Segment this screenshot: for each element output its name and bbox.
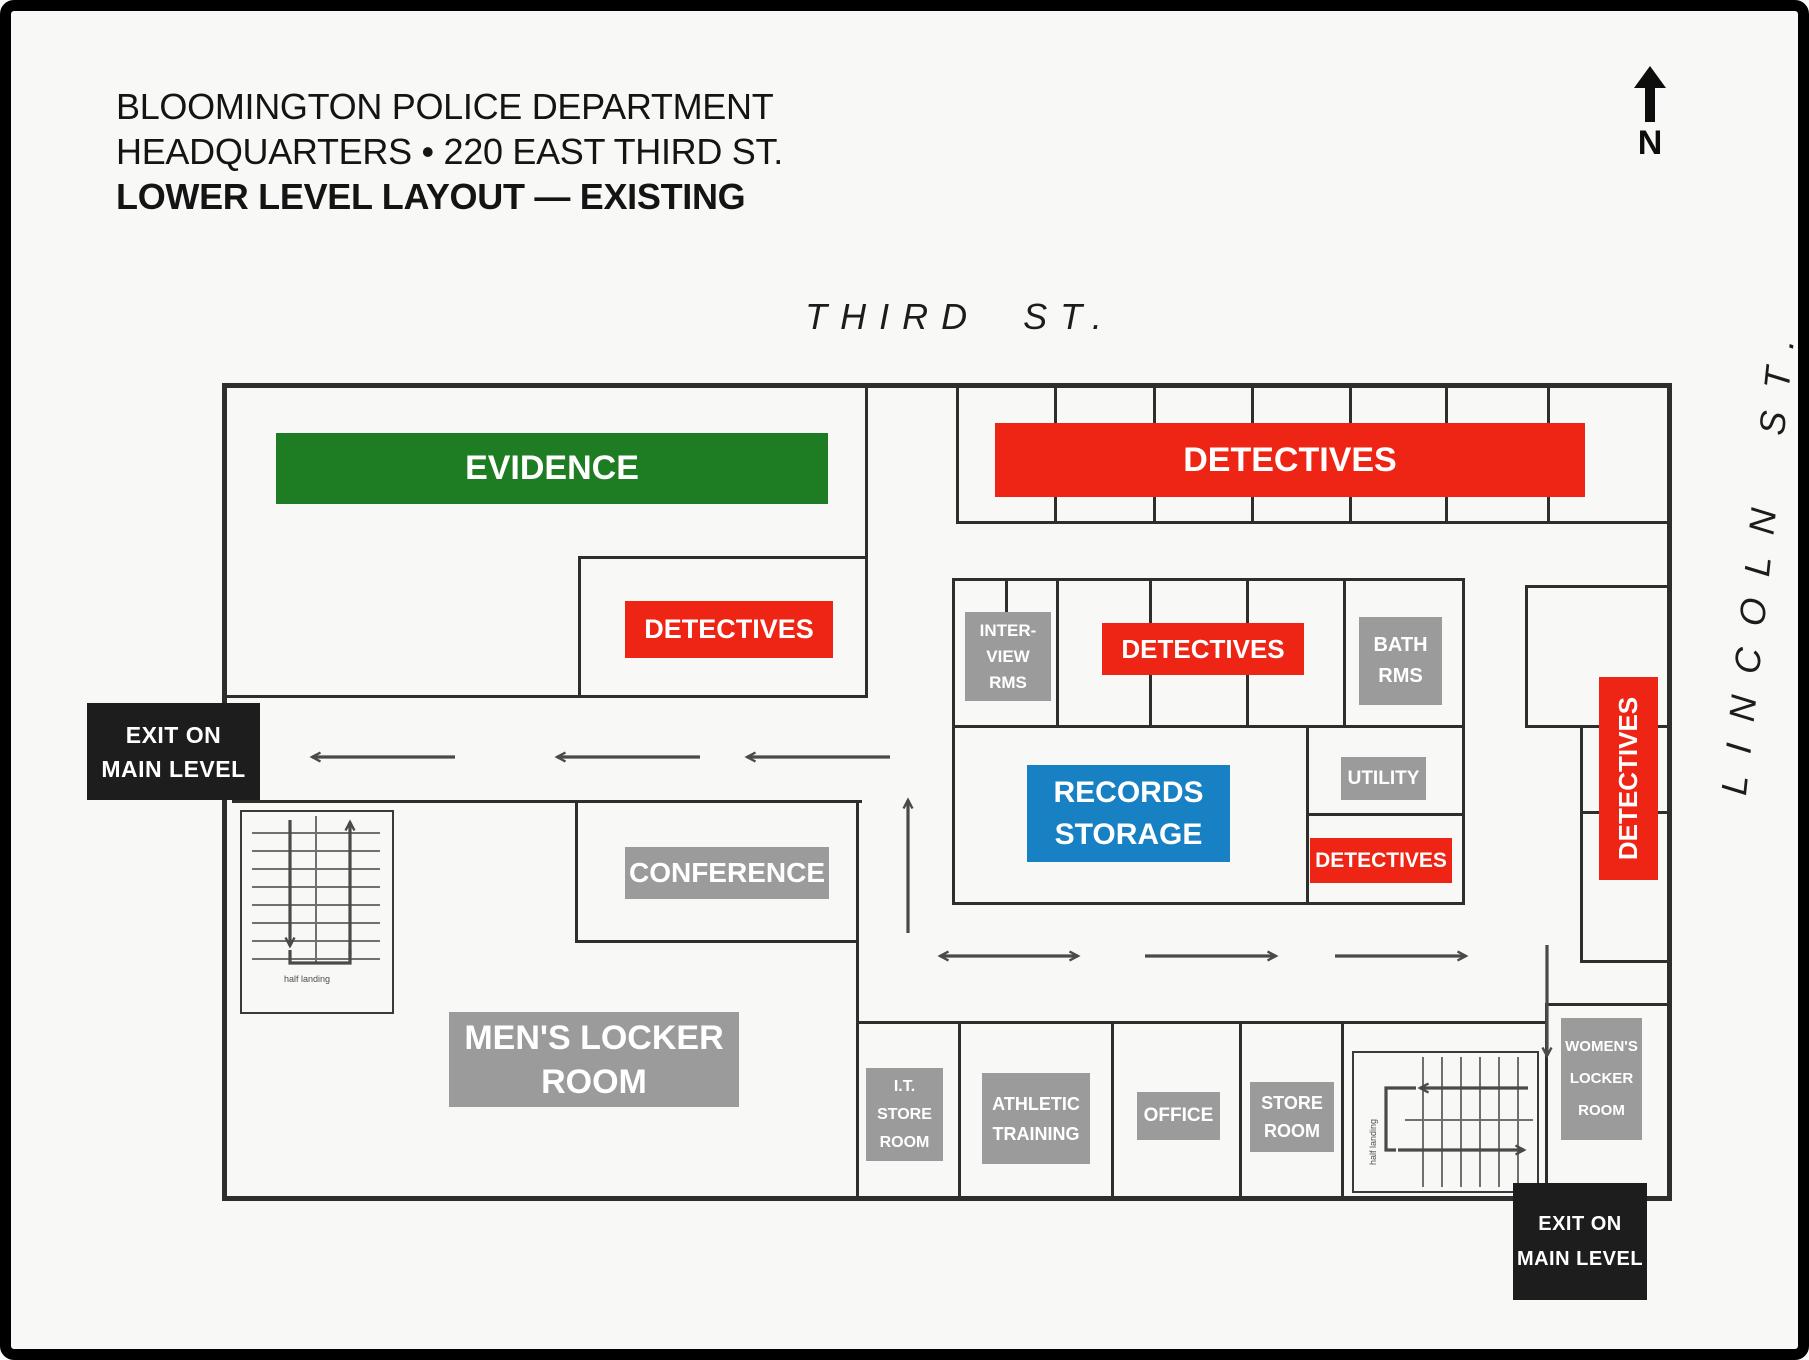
room-label-bath-rooms: BATH RMS xyxy=(1359,617,1442,705)
exit-southeast-badge: EXIT ON MAIN LEVEL xyxy=(1513,1183,1647,1300)
compass: N xyxy=(1618,66,1682,163)
room-label-it-store-room: I.T. STORE ROOM xyxy=(866,1068,943,1161)
room-label-store-room: STORE ROOM xyxy=(1250,1082,1334,1152)
title-line-3: LOWER LEVEL LAYOUT — EXISTING xyxy=(116,174,783,219)
room-label-womens-locker-room: WOMEN'S LOCKER ROOM xyxy=(1561,1018,1642,1140)
room-label-interview-rooms: INTER- VIEW RMS xyxy=(965,612,1051,701)
room-label-detectives-west: DETECTIVES xyxy=(625,601,833,658)
room-label-athletic-training: ATHLETIC TRAINING xyxy=(982,1073,1090,1164)
room-label-utility: UTILITY xyxy=(1341,757,1426,800)
compass-north-label: N xyxy=(1618,124,1682,163)
west-stairs-landing-connector xyxy=(290,950,350,963)
room-label-office: OFFICE xyxy=(1137,1092,1220,1140)
north-arrow-icon xyxy=(1632,66,1668,122)
room-label-mens-locker-room: MEN'S LOCKER ROOM xyxy=(449,1012,739,1107)
title-block: BLOOMINGTON POLICE DEPARTMENT HEADQUARTE… xyxy=(116,84,783,219)
exit-west-badge: EXIT ON MAIN LEVEL xyxy=(87,703,260,800)
east-stairs-landing-connector xyxy=(1386,1088,1416,1150)
room-label-detectives-east: DETECTIVES xyxy=(1599,677,1658,880)
room-label-detectives-south: DETECTIVES xyxy=(1310,838,1452,883)
room-label-detectives-bullpen: DETECTIVES xyxy=(995,423,1585,497)
room-label-conference: CONFERENCE xyxy=(625,847,829,899)
title-line-2: HEADQUARTERS • 220 EAST THIRD ST. xyxy=(116,129,783,174)
street-label-third-st: THIRD ST. xyxy=(660,296,1260,338)
room-label-evidence: EVIDENCE xyxy=(276,433,828,504)
title-line-1: BLOOMINGTON POLICE DEPARTMENT xyxy=(116,84,783,129)
room-label-records-storage: RECORDS STORAGE xyxy=(1027,765,1230,862)
room-label-detectives-central: DETECTIVES xyxy=(1102,623,1304,675)
